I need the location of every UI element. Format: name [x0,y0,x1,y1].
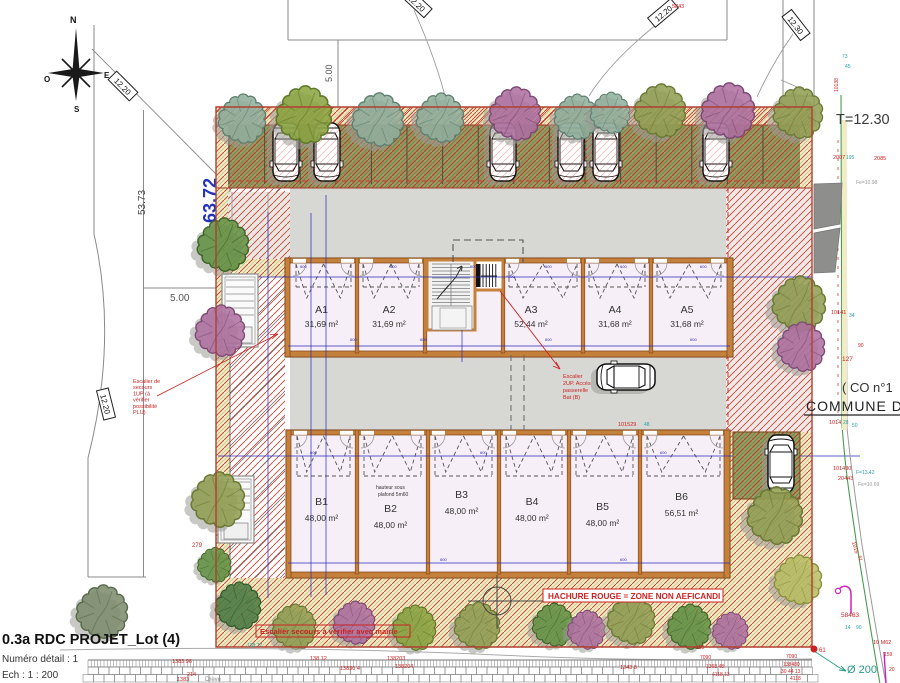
svg-text:1UP (à: 1UP (à [133,391,151,397]
svg-text:N: N [70,15,77,25]
svg-text:O: O [44,75,50,84]
svg-text:28: 28 [843,420,849,426]
svg-text:195: 195 [846,155,855,161]
svg-text:600: 600 [300,264,307,269]
svg-text:600: 600 [440,557,447,562]
svg-text:2085: 2085 [874,156,886,162]
svg-text:73: 73 [842,54,848,60]
svg-text:20: 20 [889,667,895,673]
svg-text:90: 90 [858,343,864,349]
svg-text:138480: 138480 [783,662,800,668]
svg-text:A4: A4 [609,304,622,316]
svg-text:600: 600 [545,337,552,342]
svg-text:Fe=10.98: Fe=10.98 [856,180,877,186]
svg-text:600: 600 [690,337,697,342]
svg-text:600: 600 [508,274,515,279]
svg-text:600: 600 [310,450,317,455]
svg-text:plafond 5m60: plafond 5m60 [378,492,409,498]
svg-text:31,68 m²: 31,68 m² [670,319,704,329]
svg-text:Escalier: Escalier [563,374,583,380]
svg-text:50: 50 [852,423,858,429]
svg-text:5843: 5843 [672,4,684,10]
svg-text:( CO n°1: ( CO n°1 [842,380,893,395]
svg-text:20443: 20443 [838,476,853,482]
svg-text:7090: 7090 [700,655,711,661]
svg-text:5.00: 5.00 [324,64,334,82]
svg-text:48: 48 [644,422,650,428]
svg-text:30 44 13: 30 44 13 [781,669,801,675]
svg-text:48,00 m²: 48,00 m² [586,518,620,528]
svg-text:Ø 200: Ø 200 [847,664,877,676]
svg-text:1343 8: 1343 8 [620,665,637,671]
svg-text:5.00: 5.00 [170,293,190,304]
svg-text:7090: 7090 [786,654,797,660]
svg-text:52,44 m²: 52,44 m² [514,319,548,329]
svg-text:passerelle: passerelle [563,388,588,394]
svg-text:600: 600 [470,264,477,269]
svg-text:163: 163 [696,645,705,651]
svg-text:56,51 m²: 56,51 m² [665,508,699,518]
svg-text:HACHURE ROUGE = ZONE NON AEFIC: HACHURE ROUGE = ZONE NON AEFICANDI [548,592,720,601]
svg-text:A5: A5 [681,304,694,316]
svg-text:159: 159 [884,652,893,658]
svg-text:1383: 1383 [177,677,189,683]
svg-text:34: 34 [849,313,855,319]
svg-text:48,00 m²: 48,00 m² [374,520,408,530]
svg-text:4118 13: 4118 13 [712,672,730,678]
svg-text:vérifier: vérifier [133,398,150,404]
svg-text:10141: 10141 [831,310,846,316]
svg-text:138204: 138204 [395,664,413,670]
svg-text:2007: 2007 [833,155,845,161]
svg-text:101430: 101430 [833,466,851,472]
svg-text:secours: secours [133,385,153,391]
svg-text:279: 279 [192,543,203,549]
svg-text:A2: A2 [383,304,396,316]
svg-text:10 M62: 10 M62 [873,640,891,646]
svg-text:4118: 4118 [790,676,801,682]
svg-text:600: 600 [545,264,552,269]
svg-text:600: 600 [660,450,667,455]
svg-text:138 77: 138 77 [247,643,263,649]
svg-text:48,00 m²: 48,00 m² [305,513,339,523]
svg-text:14: 14 [845,625,851,631]
svg-text:48,00 m²: 48,00 m² [515,513,549,523]
svg-text:Numéro détail : 1: Numéro détail : 1 [2,654,79,665]
svg-text:B3: B3 [455,489,468,501]
svg-text:COMMUNE D: COMMUNE D [806,398,900,414]
svg-text:Ech : 1 : 200: Ech : 1 : 200 [2,670,59,681]
svg-text:1368 48: 1368 48 [706,664,724,670]
svg-text:B5: B5 [596,501,609,513]
svg-text:Drève: Drève [205,677,222,683]
svg-text:101529: 101529 [618,422,636,428]
svg-text:45: 45 [845,64,851,70]
svg-text:hauteur sous: hauteur sous [376,485,405,491]
svg-text:1014: 1014 [829,420,841,426]
svg-text:B2: B2 [384,503,397,515]
svg-text:Escalier secours à vérifier av: Escalier secours à vérifier avec mairie [260,627,398,636]
svg-text:B4: B4 [526,496,539,508]
svg-text:possibilité: possibilité [133,404,157,410]
svg-text:Fe=10.69: Fe=10.69 [858,482,879,488]
svg-text:600: 600 [390,264,397,269]
svg-text:53.73: 53.73 [137,190,148,215]
svg-text:138203: 138203 [387,656,405,662]
svg-text:0.3a RDC PROJET_Lot (4): 0.3a RDC PROJET_Lot (4) [2,632,180,648]
svg-text:13830 4: 13830 4 [340,666,360,672]
svg-text:2UP. Accès: 2UP. Accès [563,381,591,387]
svg-text:600: 600 [480,450,487,455]
svg-text:31,69 m²: 31,69 m² [372,319,406,329]
svg-text:31,68 m²: 31,68 m² [598,319,632,329]
svg-text:T=12.30: T=12.30 [836,112,890,128]
svg-text:127: 127 [842,356,853,363]
svg-text:Bat (B): Bat (B) [563,395,580,401]
svg-text:61: 61 [819,648,826,654]
svg-text:58463: 58463 [841,612,859,619]
svg-text:10138: 10138 [834,78,840,92]
svg-text:600: 600 [620,264,627,269]
svg-text:S: S [74,105,80,114]
svg-text:F=13.42: F=13.42 [856,470,875,476]
svg-text:A3: A3 [525,304,538,316]
svg-text:600: 600 [350,337,357,342]
svg-text:600: 600 [620,557,627,562]
svg-text:90: 90 [856,625,862,631]
svg-text:B6: B6 [675,491,688,503]
svg-text:600: 600 [420,337,427,342]
svg-text:1383 96: 1383 96 [172,659,192,665]
svg-text:31,69 m²: 31,69 m² [305,319,339,329]
svg-text:Escalier de: Escalier de [133,379,160,385]
svg-text:PLU): PLU) [133,410,146,416]
svg-text:600: 600 [700,264,707,269]
svg-text:48,00 m²: 48,00 m² [445,506,479,516]
svg-text:138 12: 138 12 [310,656,327,662]
